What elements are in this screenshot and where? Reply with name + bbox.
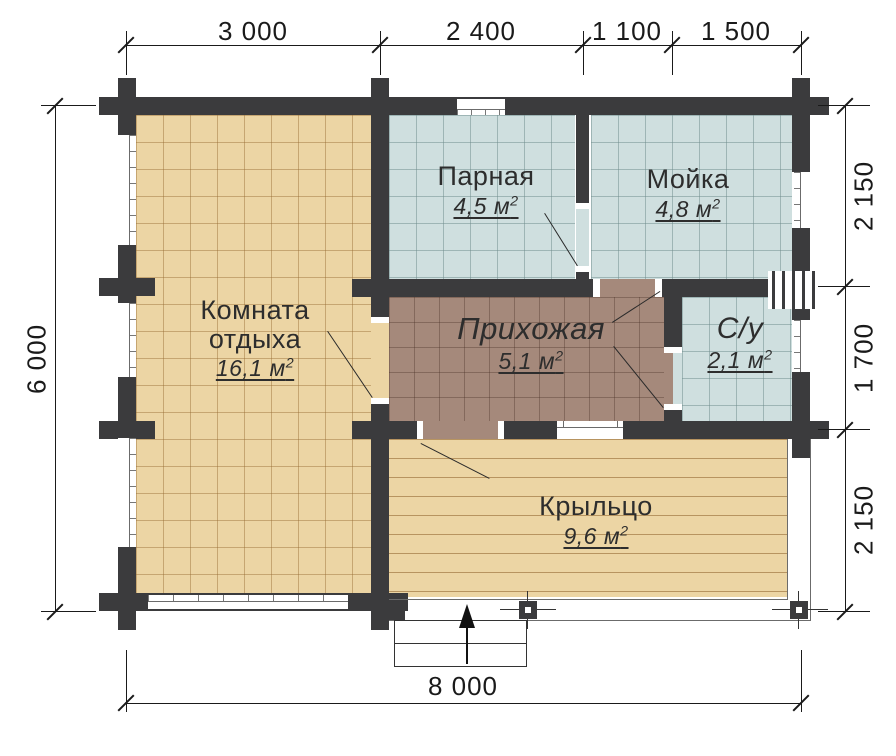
dim-label-top-4: 1 500 (676, 16, 796, 47)
porch-edge-line (389, 599, 787, 600)
window-frame-line (800, 320, 801, 372)
door-opening-wash-hall (600, 279, 655, 297)
room-label-rest: Комната отдыха 16,1 м2 (165, 296, 345, 382)
door-jamb (593, 279, 600, 297)
dim-label-left: 6 000 (22, 324, 53, 394)
log-joint (773, 97, 829, 115)
log-end-hatch-lines (772, 271, 822, 309)
door-sill-tick (563, 421, 564, 427)
log-joint (99, 278, 155, 296)
window-frame-line (800, 172, 801, 228)
door-jamb (417, 421, 423, 439)
room-area: 4,8 м2 (655, 196, 720, 223)
room-name: Комната отдыха (175, 296, 335, 353)
window-frame-ticks (130, 135, 136, 245)
room-label-steam: Парная 4,5 м2 (438, 162, 535, 220)
room-name: Парная (438, 162, 535, 191)
room-label-hall: Прихожая 5,1 м2 (457, 313, 605, 375)
wall-hall-porch-mid (504, 421, 557, 439)
room-label-porch: Крыльцо 9,6 м2 (539, 492, 653, 550)
porch-column-core (525, 607, 531, 613)
room-area: 5,1 м2 (498, 348, 563, 375)
room-name: Крыльцо (539, 492, 653, 521)
entrance-arrow (459, 604, 475, 628)
dim-ext-line (41, 105, 96, 106)
log-joint (773, 421, 829, 439)
door-opening-rest-hall (371, 323, 389, 398)
room-name: С/у (707, 313, 772, 345)
window-frame-ticks (794, 320, 800, 372)
log-joint (99, 421, 155, 439)
room-area: 4,5 м2 (453, 193, 518, 220)
room-area: 16,1 м2 (216, 355, 294, 382)
door-jamb (498, 421, 504, 439)
room-label-wash: Мойка 4,8 м2 (647, 165, 730, 223)
door-jamb (664, 347, 682, 353)
steps-division-line (394, 643, 527, 644)
wall-steam-wash-stub (576, 272, 589, 279)
entrance-arrow-stem (466, 628, 468, 664)
log-joint (352, 97, 408, 115)
room-area: 2,1 м2 (707, 347, 772, 374)
dim-ext-line (801, 31, 802, 75)
door-sill-line (557, 427, 623, 428)
window-frame-ticks (130, 303, 136, 377)
log-joint (352, 279, 408, 297)
door-opening-hall-bath-b (673, 353, 682, 404)
floor-plan: Комната отдыха 16,1 м2 Парная 4,5 м2 Мой… (0, 0, 896, 756)
porch-outer-line-right (810, 439, 811, 620)
room-label-bath: С/у 2,1 м2 (707, 313, 772, 374)
door-jamb (371, 317, 389, 323)
dim-label-top-3: 1 100 (567, 16, 687, 47)
door-jamb (664, 404, 682, 410)
dim-line-left (55, 106, 56, 612)
log-joint (352, 421, 408, 439)
wall-steam-wash-upper (576, 115, 589, 203)
dim-label-top-1: 3 000 (193, 16, 313, 47)
door-jamb (371, 398, 389, 404)
window-frame-line (148, 601, 348, 602)
wall-hall-porch-right (623, 421, 792, 439)
log-joint (352, 593, 408, 611)
dim-label-right-1: 2 150 (849, 161, 880, 231)
dim-line-right (845, 106, 846, 612)
room-name: Прихожая (457, 313, 605, 346)
wall-wash-bath (662, 279, 770, 297)
dim-ext-line (41, 611, 96, 612)
window-frame-ticks (794, 172, 800, 228)
window-frame-ticks (457, 110, 505, 115)
dim-ext-line (126, 31, 127, 75)
dim-label-right-2: 1 700 (849, 323, 880, 393)
opening-hall-porch (423, 421, 498, 439)
door-jamb (576, 266, 589, 272)
wall-bath-left-upper (664, 297, 682, 347)
door-jamb (576, 203, 589, 209)
room-name: Мойка (647, 165, 730, 194)
dim-label-top-2: 2 400 (421, 16, 541, 47)
door-hall-porch (557, 421, 623, 439)
dim-label-right-3: 2 150 (849, 485, 880, 555)
window-frame-ticks (130, 438, 136, 547)
log-joint (99, 97, 155, 115)
porch-column-core (796, 607, 802, 613)
dim-label-bottom: 8 000 (403, 671, 523, 702)
porch-edge-line (787, 439, 788, 600)
door-sill-tick (617, 421, 618, 427)
door-opening-steam-wash (576, 209, 589, 266)
window-frame-ticks (148, 595, 348, 601)
dim-line-bottom (126, 703, 801, 704)
log-joint (99, 593, 155, 611)
room-area: 9,6 м2 (563, 523, 628, 550)
dim-ext-line (380, 31, 381, 75)
door-opening-hall-bath-a (664, 353, 673, 404)
